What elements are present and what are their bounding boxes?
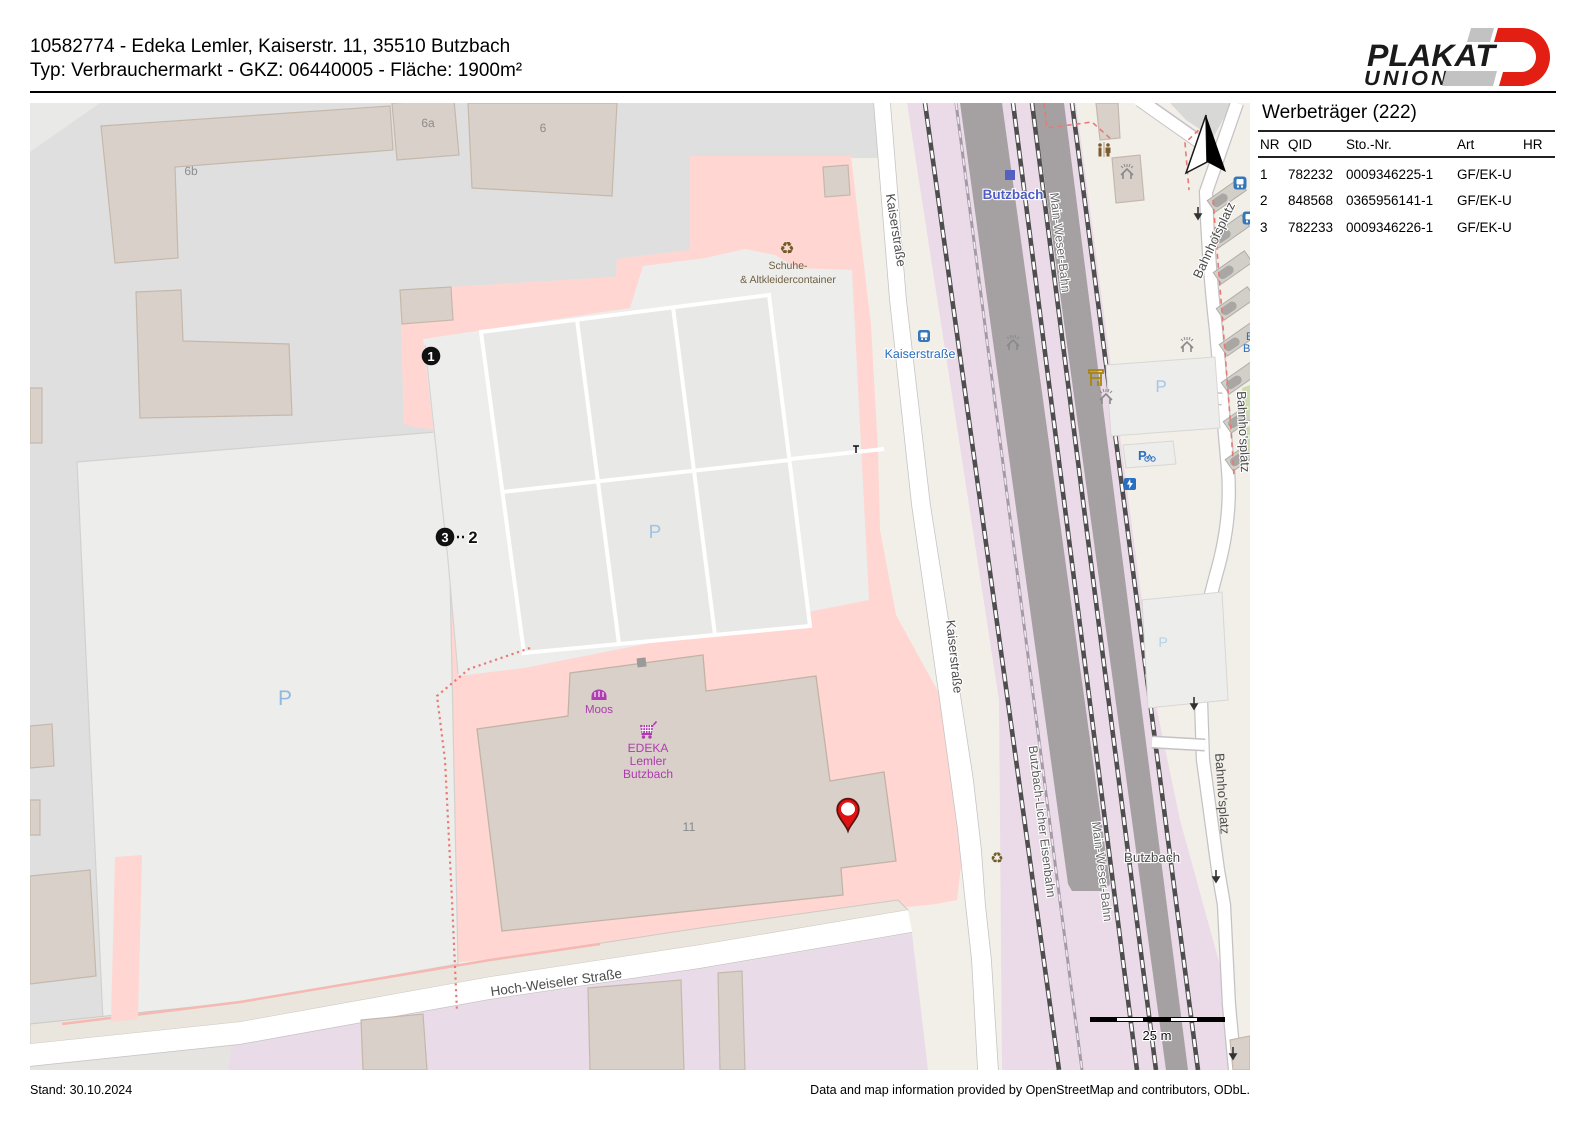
svg-text:EDEKA: EDEKA: [628, 741, 669, 755]
svg-text:Kaiserstraße: Kaiserstraße: [885, 347, 956, 361]
svg-text:11: 11: [683, 820, 696, 834]
svg-text:& Altkleidercontainer: & Altkleidercontainer: [740, 274, 836, 286]
svg-text:Butzbach: Butzbach: [1124, 850, 1180, 865]
svg-text:2: 2: [468, 529, 477, 547]
svg-text:Lemler: Lemler: [630, 754, 667, 768]
svg-text:P: P: [1158, 634, 1167, 650]
svg-text:6b: 6b: [184, 164, 198, 178]
svg-text:♻: ♻: [779, 239, 794, 258]
svg-text:Butzbach: Butzbach: [983, 187, 1044, 202]
svg-text:Butzbach: Butzbach: [623, 767, 673, 781]
svg-text:1: 1: [427, 349, 434, 364]
svg-text:Schuhe-: Schuhe-: [768, 260, 808, 272]
svg-text:Bu: Bu: [1243, 343, 1250, 355]
svg-text:P: P: [649, 522, 662, 543]
svg-text:25 m: 25 m: [1143, 1028, 1172, 1043]
svg-text:P: P: [1155, 377, 1166, 396]
svg-text:6a: 6a: [421, 116, 435, 130]
svg-text:♻: ♻: [990, 850, 1003, 867]
svg-text:B: B: [1246, 331, 1250, 343]
svg-text:6: 6: [540, 121, 547, 135]
svg-text:Moos: Moos: [585, 704, 613, 716]
svg-text:3: 3: [441, 530, 448, 545]
svg-text:UNION: UNION: [1364, 67, 1450, 90]
svg-text:P: P: [278, 687, 292, 710]
